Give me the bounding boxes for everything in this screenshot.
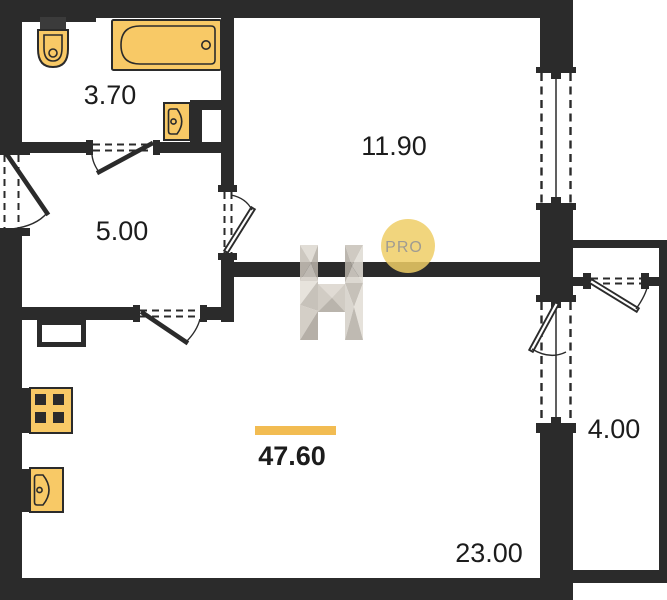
door-leaf-core [532, 305, 556, 349]
sink-mount [22, 469, 30, 512]
wall-segment [649, 277, 659, 286]
floor-plan-page: H PRO 3.70 [0, 0, 667, 600]
door-jamb [153, 140, 160, 155]
door-leaf [99, 144, 151, 172]
wall-segment [572, 277, 584, 286]
wall-segment [0, 578, 573, 600]
balcony-wall [572, 240, 667, 248]
stove-burner [53, 394, 64, 405]
area-label-hall: 5.00 [96, 216, 149, 246]
wall-segment [540, 18, 573, 67]
window-tab [551, 417, 561, 423]
door-leaf-core [592, 282, 636, 309]
wall-segment [207, 307, 234, 320]
wall-segment [22, 307, 133, 320]
room-door [225, 192, 253, 253]
bathtub [112, 20, 221, 70]
window-room [542, 73, 571, 203]
door-jamb [218, 185, 237, 192]
floor-plan-svg: H PRO 3.70 [0, 0, 667, 600]
wall-segment [540, 433, 573, 578]
door-jamb [218, 253, 237, 260]
window-cap [536, 295, 576, 302]
wall-segment [190, 100, 202, 153]
kitchen-sink [22, 468, 63, 512]
door-leaf [8, 156, 47, 213]
toilet [38, 17, 68, 67]
entrance-door [5, 155, 48, 229]
stove-mount [22, 388, 30, 433]
wall-segment [221, 18, 234, 185]
door-jamb [133, 305, 140, 322]
bathroom-door [92, 144, 153, 172]
wall-segment [221, 262, 540, 277]
window-cap [536, 67, 576, 73]
pro-badge: PRO [381, 219, 435, 273]
stove-burner [53, 412, 64, 423]
door-swing-arc [12, 213, 47, 229]
vent-duct [40, 323, 84, 345]
wall-segment [0, 0, 22, 147]
total-area-label: 47.60 [258, 441, 326, 471]
h-right-bar [345, 245, 363, 340]
balcony-door [591, 279, 648, 310]
area-label-kitchen-living: 23.00 [455, 538, 523, 568]
area-label-room: 11.90 [361, 131, 427, 161]
total-area-accent-bar [255, 426, 336, 435]
stove-burner [35, 412, 46, 423]
stove [22, 388, 72, 433]
brand-h-logo: H [300, 245, 363, 340]
h-left-bar [300, 245, 318, 340]
balcony-wall [659, 240, 667, 583]
hall-living-door [140, 311, 200, 343]
wall-segment [540, 203, 573, 302]
living-balcony-door [532, 305, 566, 355]
area-label-balcony: 4.00 [588, 414, 641, 444]
stove-burner [35, 394, 46, 405]
wall-segment [22, 142, 86, 153]
door-swing-arc [532, 349, 566, 355]
h-crossbar [318, 284, 345, 312]
door-swing-arc [231, 195, 252, 210]
door-swing-arc [186, 319, 200, 342]
window-tab [551, 73, 561, 79]
balcony-wall [572, 570, 667, 583]
wash-basin [164, 103, 190, 140]
bathtub-outline [112, 20, 221, 70]
pro-badge-label: PRO [385, 239, 423, 256]
wall-segment [0, 236, 22, 600]
window-cap [536, 423, 576, 433]
window-tab [551, 197, 561, 203]
door-jamb [200, 305, 207, 322]
area-label-bathroom: 3.70 [84, 80, 137, 110]
